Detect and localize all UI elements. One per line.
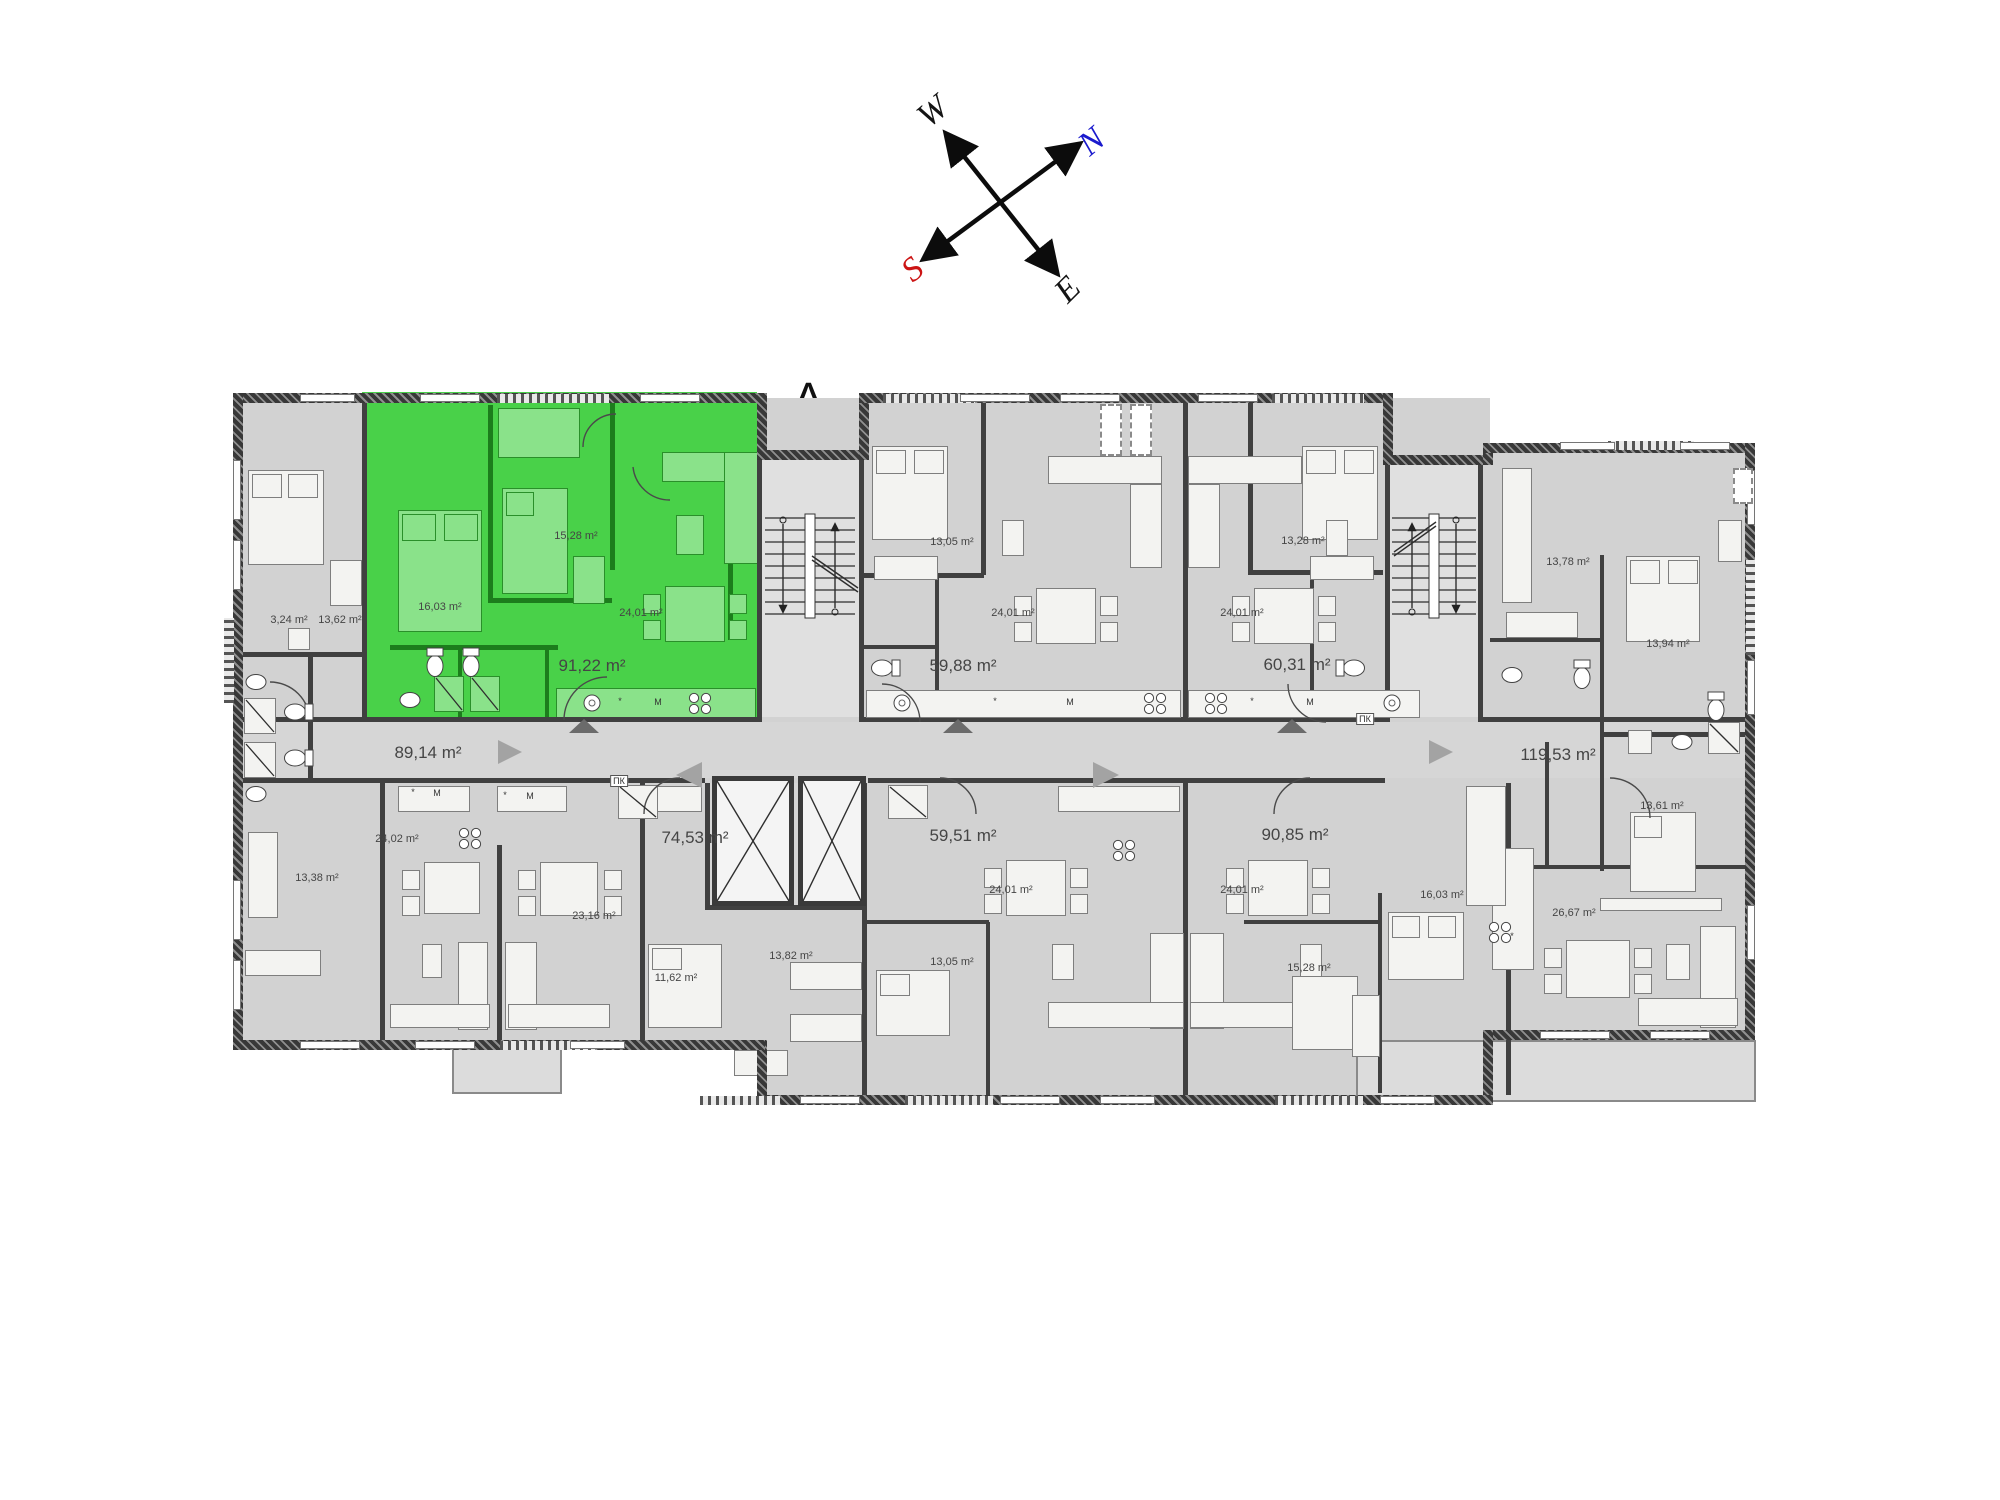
- kitchen-marker: *: [1510, 931, 1514, 941]
- fire-hydrant-label: ПК: [610, 775, 628, 787]
- compass-we-arrow: [947, 135, 1056, 272]
- balcony-railing: [905, 1096, 993, 1105]
- compass-south-label: S: [894, 250, 931, 289]
- room-area-label: 13,38 m²: [295, 872, 338, 884]
- furniture: [1048, 456, 1162, 484]
- room-area-label: 16,03 m²: [1420, 889, 1463, 901]
- exterior-wall: [1383, 455, 1493, 465]
- unit-area-label: 91,22 m²: [558, 656, 625, 676]
- furniture: [1292, 976, 1358, 1050]
- room-area-label: 3,24 m²: [270, 614, 307, 626]
- window: [1380, 1096, 1435, 1104]
- balcony-door: [1100, 404, 1122, 456]
- unit-area-label: 74,53 m²: [661, 828, 728, 848]
- furniture: [1130, 484, 1162, 568]
- furniture: [1070, 894, 1088, 914]
- furniture: [866, 690, 1181, 718]
- furniture: [1506, 612, 1578, 638]
- furniture: [1100, 622, 1118, 642]
- room-area-label: 13,78 m²: [1546, 556, 1589, 568]
- furniture: [288, 628, 310, 650]
- furniture: [1048, 1002, 1184, 1028]
- room-area-label: 15,28 m²: [554, 530, 597, 542]
- window: [1747, 660, 1755, 715]
- unit-area-label: 59,88 m²: [929, 656, 996, 676]
- wall: [1490, 638, 1604, 642]
- furniture: [724, 452, 758, 564]
- furniture: [874, 556, 938, 580]
- room-area-label: 24,02 m²: [375, 833, 418, 845]
- unit-area-label: 119,53 m²: [1520, 745, 1595, 765]
- furniture: [402, 514, 436, 541]
- furniture: [1312, 894, 1330, 914]
- furniture: [252, 474, 282, 498]
- wall: [238, 717, 762, 722]
- exterior-wall: [1483, 1030, 1493, 1105]
- balcony-terrace: [1356, 1040, 1756, 1102]
- furniture: [1666, 944, 1690, 980]
- furniture: [880, 974, 910, 996]
- furniture: [1344, 450, 1374, 474]
- wall: [864, 645, 939, 649]
- exterior-wall: [1490, 1030, 1755, 1040]
- furniture: [1708, 722, 1740, 754]
- furniture: [676, 515, 704, 555]
- kitchen-marker: M: [1306, 697, 1314, 707]
- wall: [981, 398, 986, 575]
- room-area-label: 13,62 m²: [318, 614, 361, 626]
- furniture: [402, 870, 420, 890]
- wall: [1378, 893, 1382, 1093]
- furniture: [444, 514, 478, 541]
- room-area-label: 24,01 m²: [1220, 607, 1263, 619]
- window: [800, 1096, 860, 1104]
- balcony-railing: [1746, 560, 1755, 655]
- furniture: [1634, 948, 1652, 968]
- room-area-label: 24,01 m²: [989, 884, 1032, 896]
- furniture: [1310, 556, 1374, 580]
- furniture: [1718, 520, 1742, 562]
- kitchen-marker: M: [526, 791, 534, 801]
- furniture: [1014, 622, 1032, 642]
- wall: [757, 460, 762, 722]
- room-area-label: 13,05 m²: [930, 956, 973, 968]
- furniture: [1318, 596, 1336, 616]
- furniture: [1634, 816, 1662, 838]
- furniture: [390, 1004, 490, 1028]
- furniture: [729, 594, 747, 614]
- furniture: [422, 944, 442, 978]
- furniture: [1544, 974, 1562, 994]
- window: [415, 1041, 475, 1049]
- furniture: [652, 948, 682, 970]
- furniture: [1628, 730, 1652, 754]
- furniture: [1188, 484, 1220, 568]
- furniture: [1058, 786, 1180, 812]
- wall: [390, 645, 558, 650]
- balcony-railing: [224, 618, 234, 703]
- wall: [308, 657, 313, 778]
- floor-plan-canvas: A W N S E 89,14 m²91,22 m²74,53 m²59,88 …: [0, 0, 2000, 1500]
- wall: [859, 460, 864, 722]
- window: [1747, 905, 1755, 960]
- furniture: [1232, 622, 1250, 642]
- wall: [868, 778, 1385, 783]
- furniture: [1466, 786, 1506, 906]
- furniture: [1052, 944, 1074, 980]
- furniture: [790, 962, 862, 990]
- window: [1560, 442, 1615, 450]
- furniture: [1036, 588, 1096, 644]
- room-area-label: 24,01 m²: [1220, 884, 1263, 896]
- furniture: [518, 870, 536, 890]
- window: [233, 880, 241, 940]
- wall: [1385, 455, 1390, 722]
- room-area-label: 13,94 m²: [1646, 638, 1689, 650]
- furniture: [1188, 456, 1302, 484]
- furniture: [888, 785, 928, 819]
- balcony-railing: [497, 394, 609, 403]
- window: [1650, 1031, 1710, 1039]
- window: [1680, 442, 1730, 450]
- furniture: [498, 408, 580, 458]
- furniture: [1638, 998, 1738, 1026]
- furniture: [244, 742, 276, 778]
- furniture: [1544, 948, 1562, 968]
- furniture: [1226, 894, 1244, 914]
- window: [570, 1041, 625, 1049]
- unit-area-label: 89,14 m²: [394, 743, 461, 763]
- window: [420, 394, 480, 402]
- window: [1000, 1096, 1060, 1104]
- window: [300, 394, 355, 402]
- furniture: [1668, 560, 1698, 584]
- wall: [864, 920, 989, 924]
- balcony-railing: [700, 1096, 780, 1105]
- wall: [1600, 555, 1604, 871]
- furniture: [1070, 868, 1088, 888]
- furniture: [470, 676, 500, 712]
- kitchen-marker: M: [1066, 697, 1074, 707]
- furniture: [1188, 690, 1420, 718]
- fire-hydrant-label: ПК: [1356, 713, 1374, 725]
- exterior-wall: [757, 450, 869, 460]
- kitchen-marker: M: [433, 788, 441, 798]
- wall: [1248, 398, 1253, 575]
- kitchen-marker: *: [1250, 696, 1254, 706]
- stairwell: [1390, 465, 1478, 717]
- compass-north-label: N: [1070, 119, 1114, 164]
- wall: [238, 652, 364, 657]
- furniture: [665, 586, 725, 642]
- room-area-label: 13,28 m²: [1281, 535, 1324, 547]
- room-area-label: 15,28 m²: [1287, 962, 1330, 974]
- unit-area-label: 90,85 m²: [1261, 825, 1328, 845]
- furniture: [508, 1004, 610, 1028]
- furniture: [1392, 916, 1420, 938]
- compass-rose: W N S E: [894, 87, 1114, 311]
- compass-east-label: E: [1047, 269, 1089, 311]
- balcony-terrace: [452, 1048, 562, 1094]
- furniture: [434, 676, 464, 712]
- furniture: [424, 862, 480, 914]
- compass-west-label: W: [910, 87, 958, 135]
- wall: [1478, 455, 1483, 722]
- furniture: [1600, 898, 1722, 911]
- window: [960, 394, 1030, 402]
- kitchen-marker: *: [618, 696, 622, 706]
- window: [1100, 1096, 1155, 1104]
- furniture: [573, 556, 605, 604]
- kitchen-marker: *: [993, 696, 997, 706]
- wall: [640, 783, 645, 1045]
- room-area-label: 23,16 m²: [572, 910, 615, 922]
- kitchen-marker: M: [654, 697, 662, 707]
- furniture: [1428, 916, 1456, 938]
- window: [1540, 1031, 1610, 1039]
- furniture: [1326, 520, 1348, 556]
- room-area-label: 11,62 m²: [655, 972, 698, 984]
- room-area-label: 24,01 m²: [619, 607, 662, 619]
- balcony-railing: [1272, 394, 1364, 403]
- furniture: [914, 450, 944, 474]
- kitchen-marker: *: [503, 790, 507, 800]
- furniture: [1634, 974, 1652, 994]
- furniture: [1630, 560, 1660, 584]
- wall: [238, 778, 705, 783]
- window: [1198, 394, 1258, 402]
- balcony-door: [1733, 468, 1753, 504]
- furniture: [244, 698, 276, 734]
- room-area-label: 13,05 m²: [930, 536, 973, 548]
- window: [640, 394, 700, 402]
- furniture: [540, 862, 598, 916]
- unit-area-label: 59,51 m²: [929, 826, 996, 846]
- wall: [610, 398, 615, 570]
- furniture: [984, 894, 1002, 914]
- furniture: [402, 896, 420, 916]
- furniture: [1100, 596, 1118, 616]
- window: [233, 540, 241, 590]
- furniture: [1312, 868, 1330, 888]
- window: [1060, 394, 1120, 402]
- window: [233, 460, 241, 520]
- furniture: [1306, 450, 1336, 474]
- wall: [986, 922, 990, 1095]
- wall: [362, 398, 367, 722]
- room-area-label: 24,01 m²: [991, 607, 1034, 619]
- kitchen-marker: *: [411, 787, 415, 797]
- furniture: [245, 950, 321, 976]
- stairwell: [762, 460, 859, 717]
- balcony-railing: [1275, 1096, 1363, 1105]
- furniture: [1318, 622, 1336, 642]
- balcony-door: [1130, 404, 1152, 456]
- exterior-wall: [859, 393, 869, 460]
- furniture: [518, 896, 536, 916]
- furniture: [506, 492, 534, 516]
- wall: [1244, 920, 1378, 924]
- wall: [545, 645, 549, 720]
- compass-sn-arrow: [925, 145, 1078, 258]
- furniture: [1502, 468, 1532, 603]
- furniture: [1566, 940, 1630, 998]
- furniture: [729, 620, 747, 640]
- room-area-label: 13,61 m²: [1640, 800, 1683, 812]
- furniture: [876, 450, 906, 474]
- furniture: [288, 474, 318, 498]
- wall: [380, 783, 385, 1045]
- furniture: [1002, 520, 1024, 556]
- wall: [488, 405, 493, 603]
- room-area-label: 26,67 m²: [1552, 907, 1595, 919]
- furniture: [330, 560, 362, 606]
- elevator-shaft: [798, 776, 866, 906]
- furniture: [1352, 995, 1380, 1057]
- room-area-label: 16,03 m²: [418, 601, 461, 613]
- furniture: [248, 832, 278, 918]
- furniture: [790, 1014, 862, 1042]
- unit-area-label: 60,31 m²: [1263, 655, 1330, 675]
- furniture: [604, 870, 622, 890]
- room-area-label: 13,82 m²: [769, 950, 812, 962]
- furniture: [618, 785, 658, 819]
- furniture: [643, 620, 661, 640]
- window: [300, 1041, 360, 1049]
- wall: [497, 845, 502, 1045]
- window: [233, 960, 241, 1010]
